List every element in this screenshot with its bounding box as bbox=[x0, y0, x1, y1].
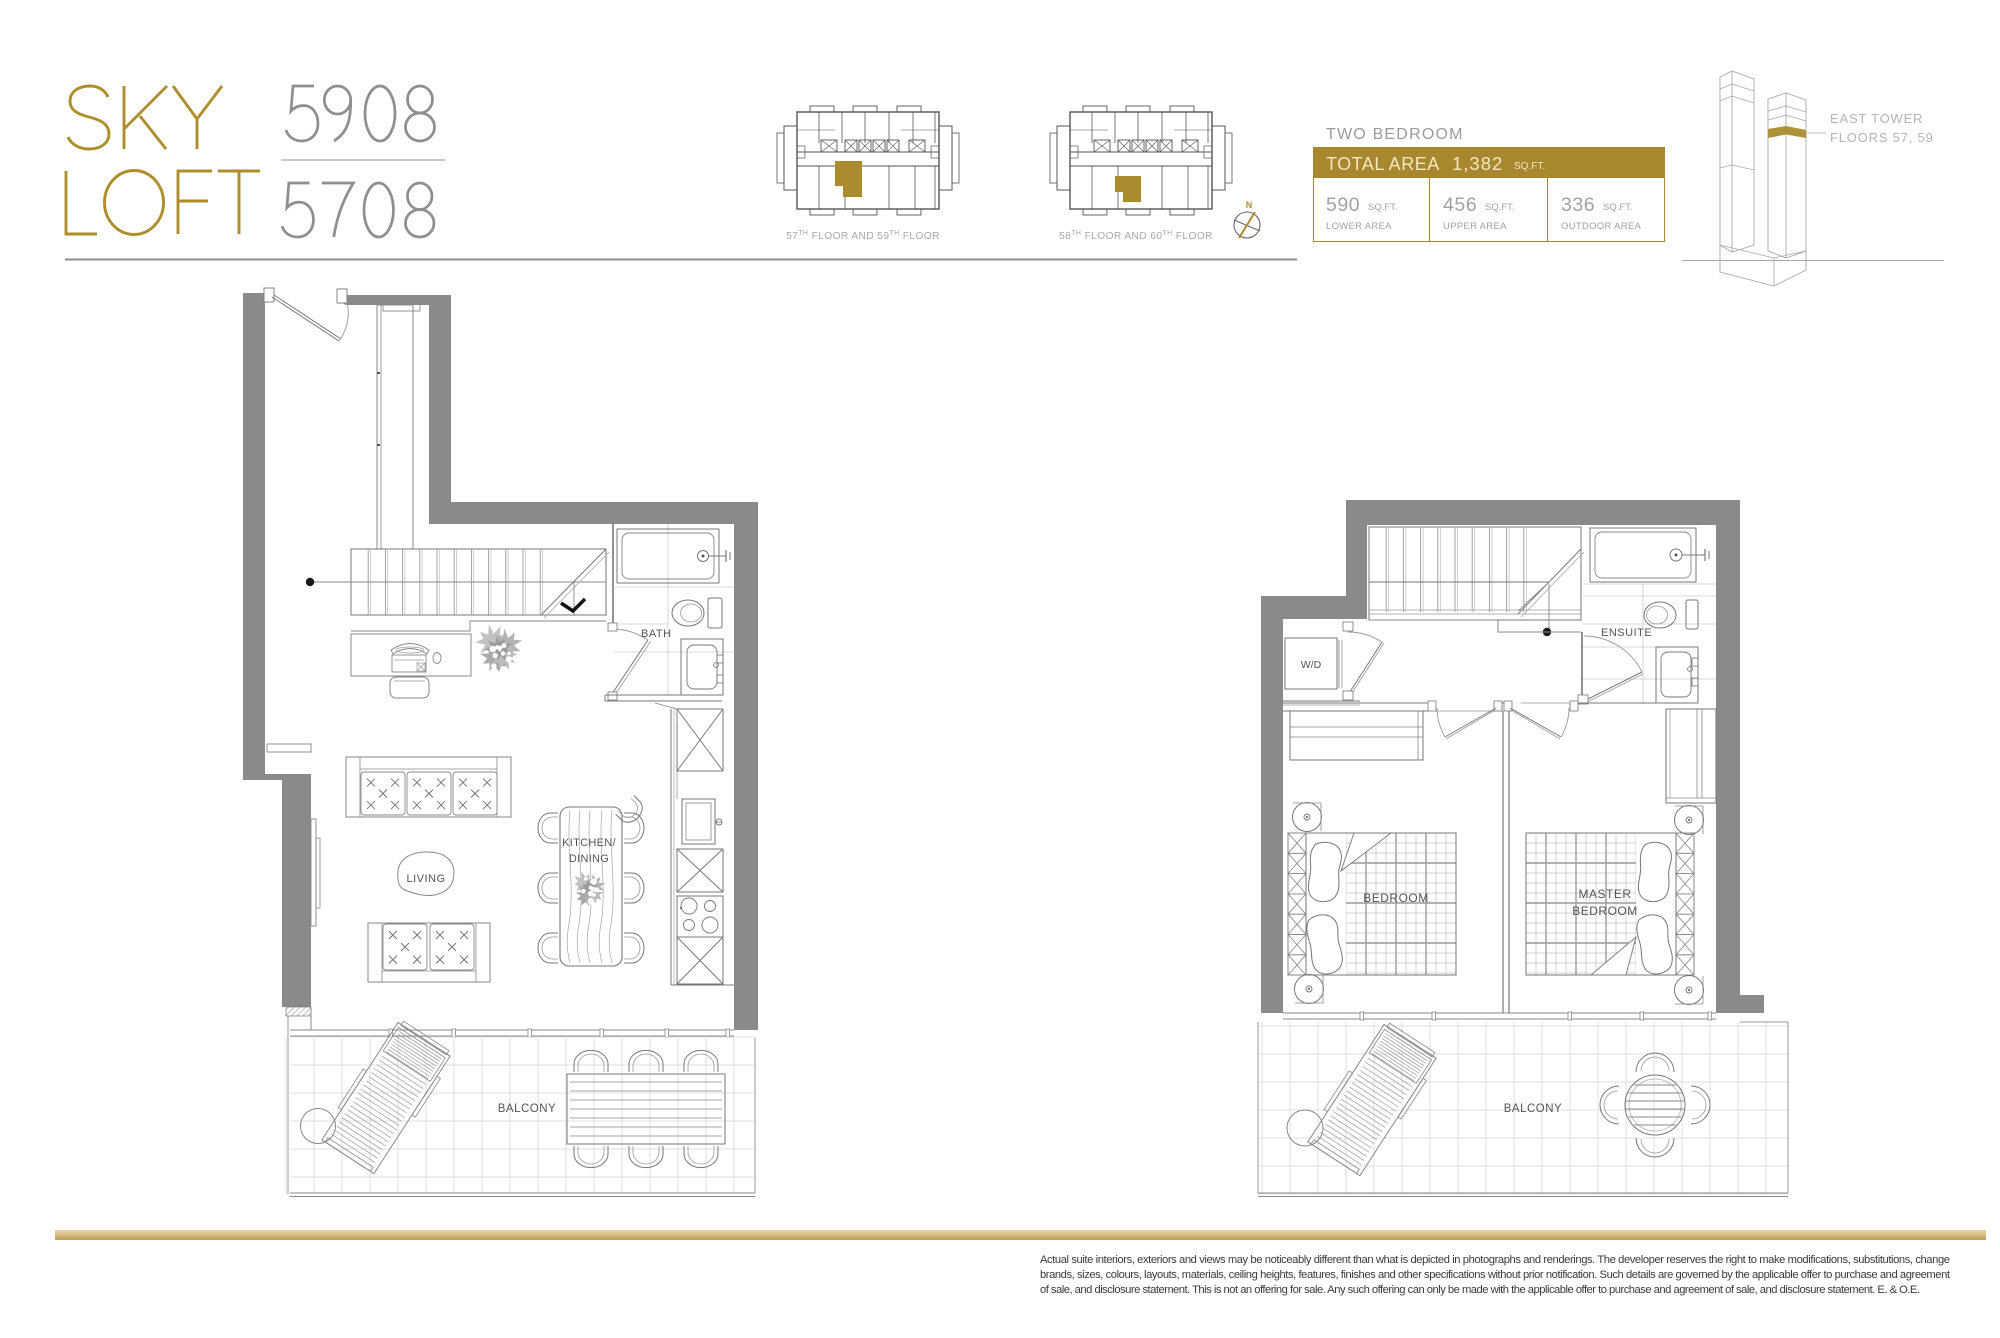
svg-text:MASTER: MASTER bbox=[1578, 887, 1631, 901]
svg-text:KITCHEN/: KITCHEN/ bbox=[562, 837, 616, 849]
svg-text:LOWER AREA: LOWER AREA bbox=[1326, 221, 1392, 232]
svg-text:SQ.FT.: SQ.FT. bbox=[1368, 202, 1398, 213]
svg-text:Actual suite interiors, exteri: Actual suite interiors, exteriors and vi… bbox=[1040, 1254, 1950, 1266]
svg-text:FLOORS 57, 59: FLOORS 57, 59 bbox=[1830, 130, 1934, 145]
svg-text:SQ.FT.: SQ.FT. bbox=[1485, 202, 1515, 213]
svg-text:BATH: BATH bbox=[641, 628, 672, 640]
svg-text:W/D: W/D bbox=[1301, 659, 1322, 671]
svg-text:BEDROOM: BEDROOM bbox=[1572, 904, 1638, 918]
svg-text:OUTDOOR AREA: OUTDOOR AREA bbox=[1561, 221, 1642, 232]
svg-text:SQ.FT.: SQ.FT. bbox=[1514, 161, 1545, 172]
svg-text:BALCONY: BALCONY bbox=[498, 1103, 556, 1115]
svg-text:58TH FLOOR AND 60TH FLOOR: 58TH FLOOR AND 60TH FLOOR bbox=[1059, 230, 1213, 242]
svg-text:N: N bbox=[1246, 200, 1253, 210]
svg-text:UPPER AREA: UPPER AREA bbox=[1443, 221, 1507, 232]
svg-text:brands, sizes, colours, layout: brands, sizes, colours, layouts, materia… bbox=[1040, 1269, 1951, 1281]
svg-text:336: 336 bbox=[1561, 194, 1595, 216]
svg-text:456: 456 bbox=[1443, 194, 1477, 216]
svg-text:57TH FLOOR AND 59TH FLOOR: 57TH FLOOR AND 59TH FLOOR bbox=[786, 230, 940, 242]
svg-text:LIVING: LIVING bbox=[406, 873, 445, 885]
svg-text:1,382: 1,382 bbox=[1452, 153, 1503, 174]
svg-text:TOTAL AREA: TOTAL AREA bbox=[1326, 154, 1440, 174]
svg-text:BEDROOM: BEDROOM bbox=[1363, 891, 1429, 905]
svg-text:of sale, and disclosure statem: of sale, and disclosure statement. This … bbox=[1040, 1284, 1920, 1296]
svg-text:SQ.FT.: SQ.FT. bbox=[1603, 202, 1633, 213]
svg-text:TWO BEDROOM: TWO BEDROOM bbox=[1326, 126, 1464, 143]
svg-text:590: 590 bbox=[1326, 194, 1360, 216]
svg-text:BALCONY: BALCONY bbox=[1504, 1103, 1562, 1115]
svg-text:DINING: DINING bbox=[569, 853, 609, 865]
svg-text:ENSUITE: ENSUITE bbox=[1601, 627, 1652, 639]
svg-text:EAST TOWER: EAST TOWER bbox=[1830, 111, 1923, 126]
